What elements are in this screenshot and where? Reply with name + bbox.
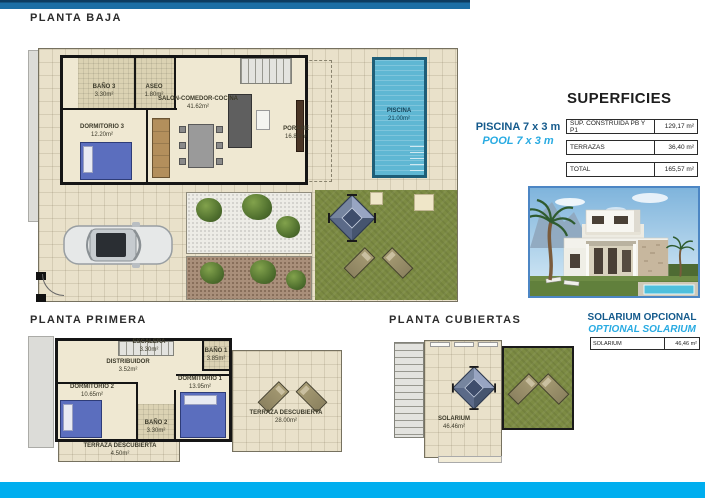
chair-icon xyxy=(179,126,186,133)
roof-slat xyxy=(454,342,474,347)
solarium-note-es: SOLARIUM OPCIONAL xyxy=(582,312,702,324)
room-label-solarium: SOLARIUM 46.46m² xyxy=(438,416,470,432)
room-name: ESCALERA xyxy=(132,339,165,345)
chair-icon xyxy=(216,158,223,165)
setback-strip xyxy=(28,336,54,448)
stairs-icon xyxy=(240,58,292,84)
room-area: 16.80m² xyxy=(283,134,309,142)
room-area: 41.62m² xyxy=(158,104,238,112)
planta-cubiertas-title: PLANTA CUBIERTAS xyxy=(389,314,521,326)
superficies-title: SUPERFICIES xyxy=(567,90,671,107)
solarium-row: SOLARIUM 46,46 m² xyxy=(590,337,700,350)
room-name: BAÑO 1 xyxy=(205,348,228,354)
room-area: 4.50m² xyxy=(84,451,157,459)
bush-icon xyxy=(242,194,272,220)
room-name: DISTRIBUIDOR xyxy=(106,359,149,365)
room-label-piscina: PISCINA 21.00m² xyxy=(387,108,411,124)
room-area: 3.30m² xyxy=(145,428,168,436)
room-name: BAÑO 2 xyxy=(145,420,168,426)
pyramid-skylight-icon xyxy=(452,366,496,410)
bush-icon xyxy=(196,198,222,222)
superficies-row: TERRAZAS 36,40 m² xyxy=(566,140,698,155)
bush-icon xyxy=(200,262,224,284)
room-label-bano1: BAÑO 1 3.85m² xyxy=(205,348,228,364)
room-label-dormitorio2: DORMITORIO 2 10.65m² xyxy=(70,384,114,400)
superficies-row: TOTAL 165,57 m² xyxy=(566,162,698,177)
room-label-escalera: ESCALERA 3.30m² xyxy=(132,339,165,355)
roof-edge xyxy=(438,456,502,463)
bush-icon xyxy=(250,260,276,284)
villa-render xyxy=(528,186,700,298)
room-area: 13.95m² xyxy=(178,384,222,392)
room-name: TERRAZA DESCUBIERTA xyxy=(250,410,323,416)
room-area: 3.30m² xyxy=(93,92,116,100)
room-name: ASEO xyxy=(145,84,162,90)
room-label-bano3: BAÑO 3 3.30m² xyxy=(93,84,116,100)
pool-note-es: PISCINA 7 x 3 m xyxy=(452,120,584,134)
solarium-note: SOLARIUM OPCIONAL OPTIONAL SOLARIUM xyxy=(582,312,702,336)
chair-icon xyxy=(179,142,186,149)
room-label-dormitorio1: DORMITORIO 1 13.95m² xyxy=(178,376,222,392)
room-area: 10.65m² xyxy=(70,392,114,400)
bush-icon xyxy=(286,270,306,290)
roof-slat xyxy=(430,342,450,347)
car-topview-icon xyxy=(62,222,174,268)
row-value: 165,57 m² xyxy=(655,163,697,176)
room-label-dormitorio3: DORMITORIO 3 12.20m² xyxy=(80,124,124,140)
room-area: 3.85m² xyxy=(205,356,228,364)
planta-primera-plan: ESCALERA 3.30m² DISTRIBUIDOR 3.52m² BAÑO… xyxy=(28,330,348,465)
cloud-icon xyxy=(632,193,668,203)
planta-baja-plan: BAÑO 3 3.30m² ASEO 1.80m² SALON-COMEDOR-… xyxy=(28,44,460,304)
coffee-table-icon xyxy=(256,110,270,130)
pool-steps-icon xyxy=(410,146,424,174)
room-name: DORMITORIO 1 xyxy=(178,376,222,382)
room-name: SALON-COMEDOR-COCINA xyxy=(158,96,238,102)
room-name: DORMITORIO 3 xyxy=(80,124,124,130)
bottom-accent-bar xyxy=(0,482,705,498)
room-area: 12.20m² xyxy=(80,132,124,140)
row-value: 36,40 m² xyxy=(655,141,697,154)
chair-icon xyxy=(216,126,223,133)
bush-icon xyxy=(276,216,300,238)
planta-baja-title: PLANTA BAJA xyxy=(30,12,122,24)
chair-icon xyxy=(179,158,186,165)
top-accent-bar xyxy=(0,0,470,9)
room-label-terraza-der: TERRAZA DESCUBIERTA 28.00m² xyxy=(250,410,323,426)
brochure-page: PLANTA BAJA xyxy=(0,0,705,498)
room-area: 28.00m² xyxy=(250,418,323,426)
bed-icon xyxy=(180,392,226,438)
room-area: 21.00m² xyxy=(387,116,411,124)
room-name: PORCHE xyxy=(283,126,309,132)
room-area: 3.52m² xyxy=(106,367,149,375)
row-label: SOLARIUM xyxy=(591,338,665,349)
kitchen-island-icon xyxy=(152,118,170,178)
room-name: DORMITORIO 2 xyxy=(70,384,114,390)
room-label-bano2: BAÑO 2 3.30m² xyxy=(145,420,168,436)
chair-icon xyxy=(216,142,223,149)
row-value: 46,46 m² xyxy=(665,338,699,349)
pool-note: PISCINA 7 x 3 m POOL 7 x 3 m xyxy=(452,120,584,148)
dining-table-icon xyxy=(188,124,214,168)
stairs-icon xyxy=(394,342,424,438)
roof-slat xyxy=(478,342,498,347)
planta-cubiertas-plan: SOLARIUM 46.46m² xyxy=(388,330,578,465)
room-label-terraza-izq: TERRAZA DESCUBIERTA 4.50m² xyxy=(84,443,157,459)
render-pool-icon xyxy=(644,285,694,294)
pool-note-en: POOL 7 x 3 m xyxy=(452,134,584,148)
room-area: 3.30m² xyxy=(132,347,165,355)
room-label-salon: SALON-COMEDOR-COCINA 41.62m² xyxy=(158,96,238,112)
room-name: PISCINA xyxy=(387,108,411,114)
row-label: SUP. CONSTRUIDA PB Y P1 xyxy=(567,120,655,133)
room-label-porche: PORCHE 16.80m² xyxy=(283,126,309,142)
pyramid-skylight-icon xyxy=(328,194,376,242)
bed-icon xyxy=(80,142,132,180)
room-name: TERRAZA DESCUBIERTA xyxy=(84,443,157,449)
room-area: 46.46m² xyxy=(438,424,470,432)
planta-primera-title: PLANTA PRIMERA xyxy=(30,314,147,326)
room-label-distribuidor: DISTRIBUIDOR 3.52m² xyxy=(106,359,149,375)
row-label: TOTAL xyxy=(567,163,655,176)
superficies-row: SUP. CONSTRUIDA PB Y P1 129,17 m² xyxy=(566,119,698,134)
row-value: 129,17 m² xyxy=(655,120,697,133)
cloud-icon xyxy=(555,198,585,206)
row-label: TERRAZAS xyxy=(567,141,655,154)
gate-post xyxy=(36,294,46,302)
solarium-note-en: OPTIONAL SOLARIUM xyxy=(582,324,702,336)
bed-icon xyxy=(60,400,102,438)
step-stone xyxy=(414,194,434,211)
room-name: SOLARIUM xyxy=(438,416,470,422)
room-name: BAÑO 3 xyxy=(93,84,116,90)
